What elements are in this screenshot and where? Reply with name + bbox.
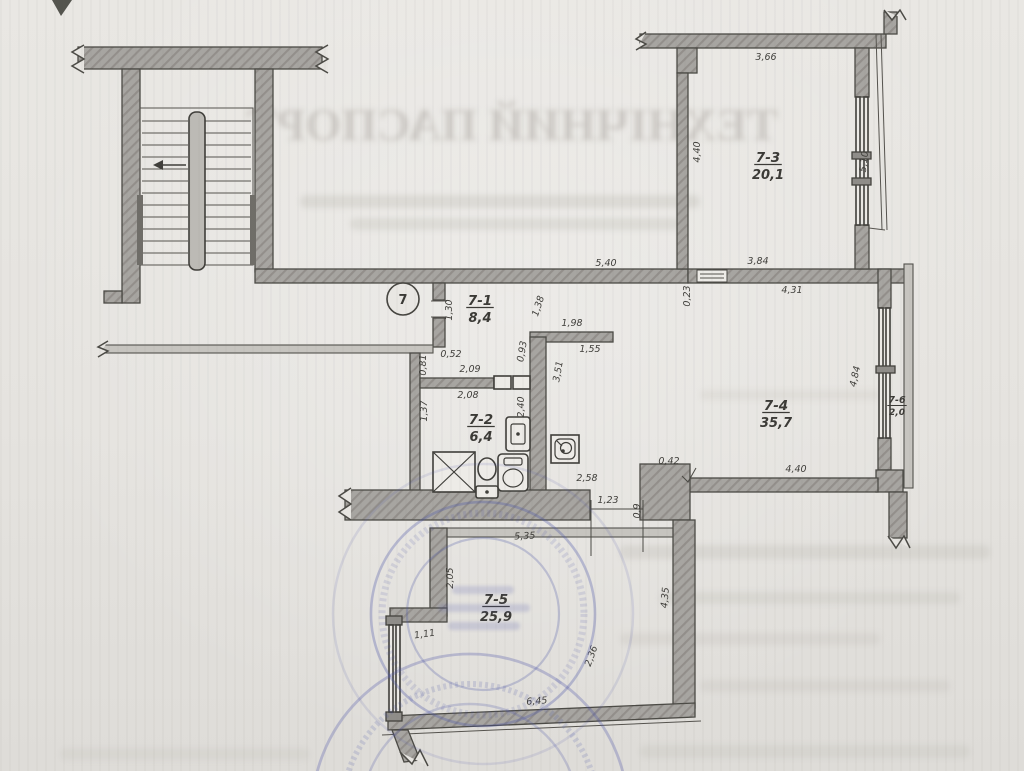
window-7-5	[389, 625, 393, 712]
dimension-label: 2,05	[445, 567, 456, 588]
wall-7-3-left	[677, 73, 688, 269]
wall-divider-vertical	[530, 337, 546, 492]
balcony-edge-7-3	[876, 34, 882, 230]
room-area: 6,4	[469, 430, 492, 445]
wall-stair-left	[122, 69, 140, 303]
dimension-label: 1,38	[530, 294, 547, 318]
scan-edge-mark	[52, 0, 72, 16]
room-area: 2,0	[889, 408, 905, 418]
dimension-label: 2,08	[457, 390, 478, 401]
wall-7-4-bottom	[683, 478, 878, 492]
dimension-label: 0,93	[515, 340, 530, 363]
dimension-label: 3,66	[755, 52, 776, 63]
dimension-label: 3,84	[747, 256, 768, 267]
apartment-number: 7	[398, 293, 407, 308]
dimension-label: 1,98	[561, 318, 582, 329]
staircase	[137, 108, 256, 270]
dimension-label: 2,40	[516, 396, 527, 417]
dimension-label: 0,52	[440, 349, 461, 360]
room-label: 7-3	[756, 150, 780, 166]
wall-corner-block	[640, 464, 690, 520]
room-label: 7-4	[764, 398, 788, 414]
wall-stair-foot	[104, 291, 122, 303]
toilet	[478, 458, 496, 480]
floor-plan-canvas: ТЕХНІЧНИЙ ПАСПОРТ	[0, 0, 1024, 771]
dimension-label: 4,40	[785, 464, 806, 475]
room-label: 7-1	[468, 293, 492, 309]
wall-7-3-top	[640, 34, 886, 48]
wall-7-4-corner	[876, 470, 903, 492]
dimension-label: 5,35	[514, 530, 536, 542]
vent-opening	[697, 270, 727, 282]
washing-machine	[498, 454, 528, 491]
dimension-label: 2,09	[459, 364, 480, 375]
room-area: 8,4	[468, 311, 491, 326]
wall-corridor-top	[255, 269, 688, 283]
dimension-label: 1,37	[419, 400, 430, 421]
entrance-jamb-top	[433, 283, 445, 300]
dimension-label: 5,40	[595, 258, 616, 269]
dimension-label: 1,11	[413, 628, 435, 642]
wall-7-3-right-lower	[855, 225, 869, 269]
wall-balcony-stub	[889, 492, 907, 538]
wall-7-5-right	[673, 520, 695, 708]
dimension-label: 0,81	[418, 354, 429, 375]
dimension-label: 3,51	[551, 360, 566, 383]
dimension-label: 1,23	[597, 495, 618, 506]
stair-balustrade-right	[250, 195, 256, 265]
stair-balustrade-left	[137, 195, 143, 265]
wall-7-4-right-upper	[878, 269, 891, 308]
dimension-label: 2,58	[576, 473, 597, 484]
dimension-label: 0,9	[632, 503, 643, 518]
dimension-label: 0,42	[658, 456, 679, 467]
scanned-floor-plan-page: ТЕХНІЧНИЙ ПАСПОРТ	[0, 0, 1024, 771]
corridor-partition	[103, 345, 433, 353]
dimension-label: 5,10	[858, 151, 871, 173]
room-label: 7-2	[469, 412, 493, 428]
dimension-label: 0,23	[682, 285, 693, 306]
stair-stringer	[189, 112, 205, 270]
apartment-number-badge: 7	[387, 283, 419, 315]
bathroom-door	[494, 376, 511, 389]
dimension-label: 4,40	[692, 141, 703, 162]
room-area: 20,1	[752, 168, 784, 183]
wall-stair-right	[255, 69, 273, 272]
dimension-label: 4,35	[659, 587, 672, 609]
dimension-label: 4,31	[781, 285, 802, 296]
room-area: 35,7	[760, 416, 793, 431]
wall-7-4-right-lower	[878, 438, 891, 470]
dimension-label: 1,55	[579, 344, 600, 355]
wall-top-left	[78, 47, 322, 69]
balcony-outer-wall	[904, 264, 913, 488]
room-label: 7-6	[888, 395, 906, 406]
entrance-jamb-bottom	[433, 318, 445, 347]
bathroom-fixtures	[433, 417, 579, 498]
dimension-label: 1,30	[444, 299, 455, 320]
wall-7-3-right-upper	[855, 48, 869, 97]
dimension-label: 4,84	[848, 365, 863, 388]
wall-7-2-top	[420, 378, 494, 388]
wall-7-3-left-notch	[677, 48, 697, 73]
